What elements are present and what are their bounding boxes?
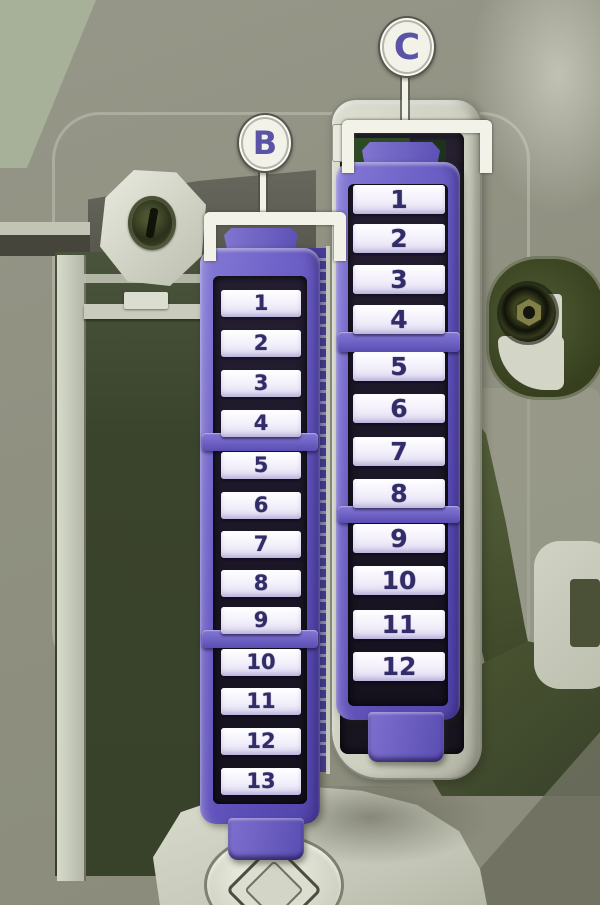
callout-b-letter: B xyxy=(253,124,277,162)
right-boss-slot xyxy=(570,579,600,647)
screw-icon xyxy=(128,196,176,250)
diamond-screw-inner xyxy=(244,860,303,905)
screw-slot-mark xyxy=(145,208,158,239)
callout-c-stem xyxy=(402,72,408,121)
left-edge-ledge xyxy=(0,222,90,235)
callout-b-stem xyxy=(260,167,266,214)
connector-c-bottom-tab xyxy=(368,712,444,762)
callout-b-circle: B xyxy=(237,113,293,173)
callout-c-circle: C xyxy=(378,16,436,78)
fuse-window-c xyxy=(348,184,448,706)
left-rail xyxy=(57,255,86,881)
rail-clip-tab xyxy=(124,292,168,309)
top-right-highlight xyxy=(468,0,600,215)
connector-b-bottom-tab xyxy=(228,818,304,860)
fuse-box-photo: 123456789101112 12345678910111213 B C xyxy=(0,0,600,905)
callout-b-bracket xyxy=(204,212,346,261)
callout-c-bracket xyxy=(342,120,492,173)
callout-c-letter: C xyxy=(394,27,420,68)
fuse-window-b xyxy=(213,276,307,804)
nut-center-hole xyxy=(523,306,535,319)
